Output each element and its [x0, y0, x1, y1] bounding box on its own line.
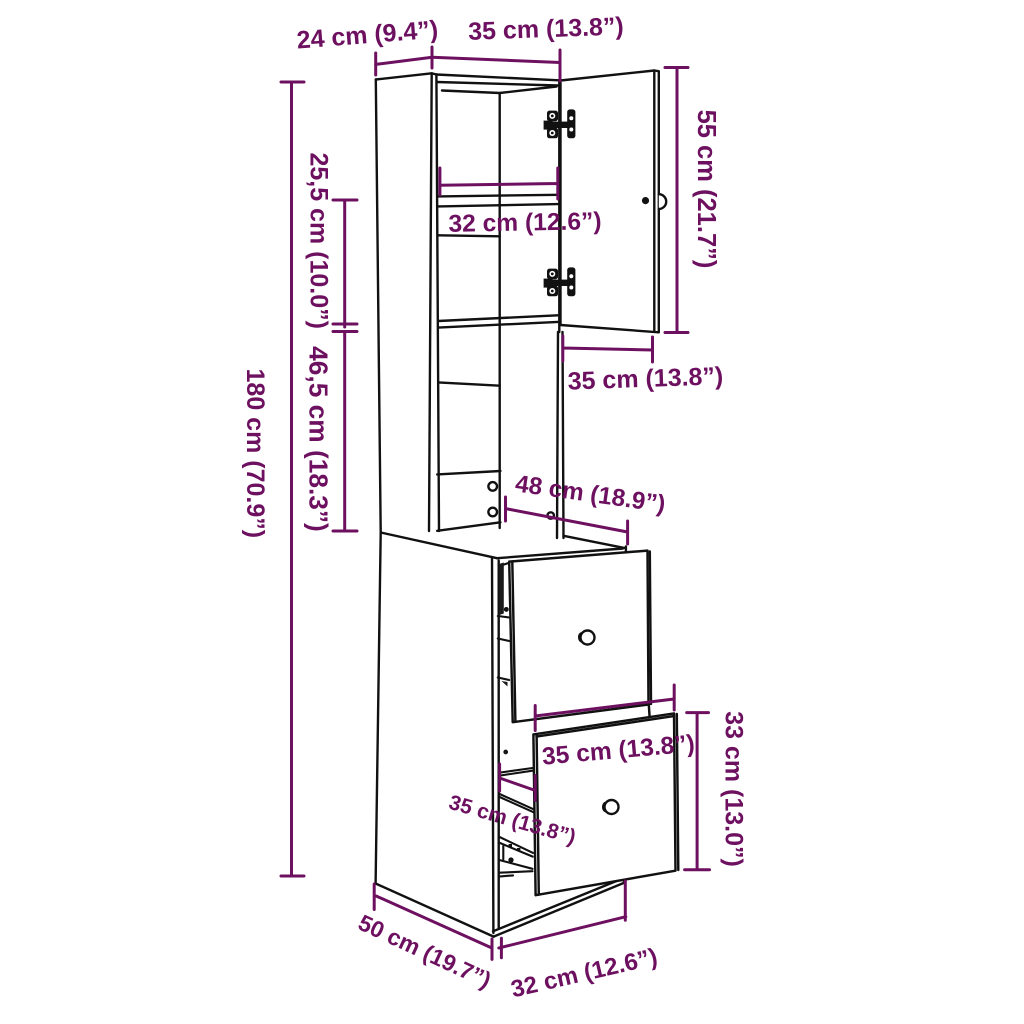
svg-text:35 cm (13.8”): 35 cm (13.8”) — [468, 12, 625, 45]
svg-text:180 cm (70.9”): 180 cm (70.9”) — [241, 369, 269, 539]
svg-text:32 cm (12.6”): 32 cm (12.6”) — [448, 208, 602, 238]
svg-text:46,5 cm (18.3”): 46,5 cm (18.3”) — [304, 346, 334, 532]
svg-text:33 cm (13.0”): 33 cm (13.0”) — [719, 711, 747, 867]
svg-text:35 cm (13.8”): 35 cm (13.8”) — [567, 362, 724, 395]
svg-text:55 cm (21.7”): 55 cm (21.7”) — [692, 110, 720, 269]
svg-text:25,5 cm (10.0”): 25,5 cm (10.0”) — [304, 152, 332, 329]
